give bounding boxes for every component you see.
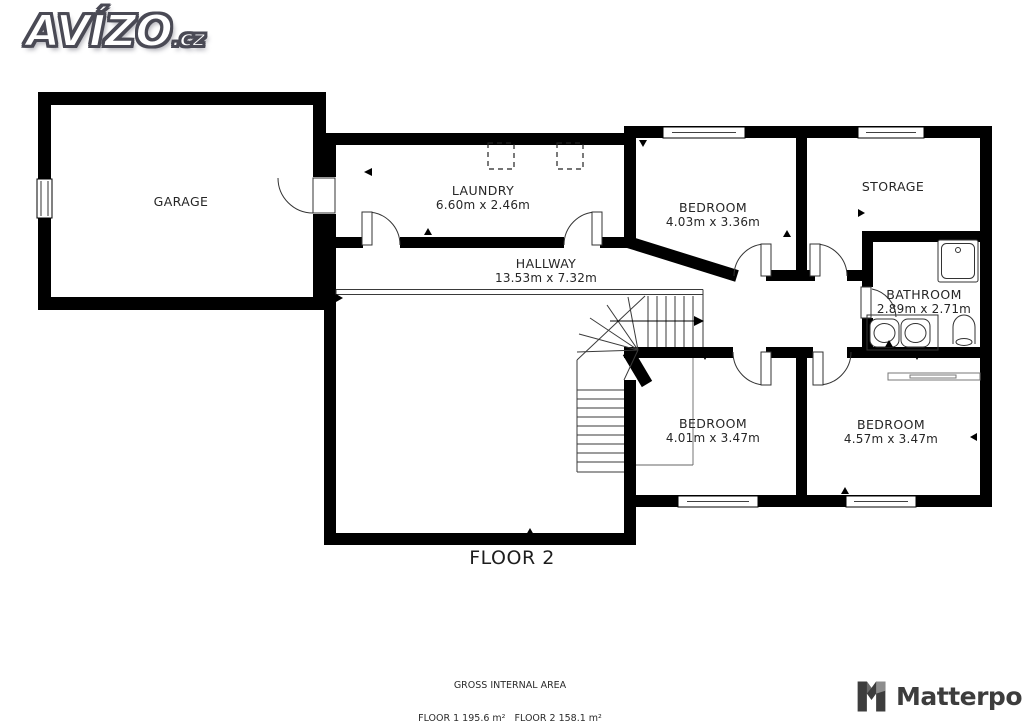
- laundry-appliances: [488, 143, 583, 169]
- bedroom-br-label: BEDROOM: [857, 417, 925, 432]
- bedroom-bl-label: BEDROOM: [679, 416, 747, 431]
- laundry-door-left: [362, 212, 400, 245]
- sink-icon: [870, 319, 899, 347]
- bathroom-dims: 2.89m x 2.71m: [877, 302, 971, 316]
- garage-window: [37, 179, 52, 218]
- storage-label: STORAGE: [862, 179, 924, 194]
- laundry-dims: 6.60m x 2.46m: [436, 198, 530, 212]
- bedroom-top-label: BEDROOM: [679, 200, 747, 215]
- bedroom-top-door: [734, 244, 771, 276]
- bedroom-br-shelf: [888, 373, 980, 380]
- hallway-label: HALLWAY: [516, 256, 576, 271]
- room-labels: GARAGE LAUNDRY 6.60m x 2.46m HALLWAY 13.…: [154, 179, 971, 446]
- sink-icon-2: [901, 319, 930, 347]
- shower-icon: [938, 240, 978, 282]
- washer-icon: [488, 143, 514, 169]
- matterport-brand: Matterport: [853, 678, 1024, 715]
- storage-door: [810, 244, 847, 276]
- laundry-label: LAUNDRY: [452, 183, 514, 198]
- floor-label: FLOOR 2: [0, 547, 1024, 569]
- bedroom-top-dims: 4.03m x 3.36m: [666, 215, 760, 229]
- bedroom-top-window: [663, 127, 745, 138]
- toilet-icon: [953, 315, 975, 346]
- bathroom-label: BATHROOM: [886, 287, 962, 302]
- matterport-icon: [853, 678, 890, 715]
- dryer-icon: [557, 143, 583, 169]
- garage-label: GARAGE: [154, 194, 209, 209]
- bedroom-br-window: [846, 496, 916, 507]
- bedroom-bl-window: [678, 496, 758, 507]
- floorplan-page: AVÍZO.cz: [0, 0, 1024, 724]
- garage-door: [278, 177, 338, 214]
- bedroom-br-dims: 4.57m x 3.47m: [844, 432, 938, 446]
- laundry-door-right: [564, 212, 602, 245]
- bedroom-bl-dims: 4.01m x 3.47m: [666, 431, 760, 445]
- bedroom-bl-door: [733, 352, 771, 385]
- hallway-dims: 13.53m x 7.32m: [495, 271, 597, 285]
- storage-window: [858, 127, 924, 138]
- matterport-wordmark: Matterport: [896, 682, 1024, 711]
- bedroom-br-door: [813, 352, 851, 385]
